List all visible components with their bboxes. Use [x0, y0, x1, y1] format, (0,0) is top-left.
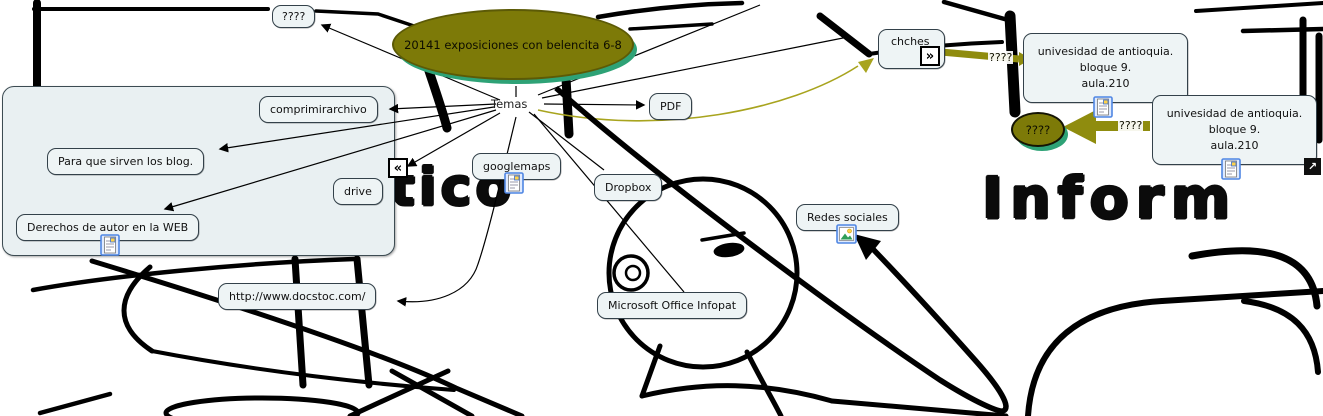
- node-universidad-2[interactable]: univesidad de antioquia. bloque 9. aula.…: [1152, 95, 1317, 165]
- link-temas-pdf: [544, 104, 644, 105]
- link-temas-derechos: [165, 110, 496, 209]
- link-label-chches-univ1[interactable]: ????: [988, 51, 1013, 64]
- document-resource-icon[interactable]: [1221, 158, 1241, 180]
- link-temas-infopath: [534, 114, 684, 292]
- document-resource-icon[interactable]: [100, 234, 120, 256]
- document-resource-icon[interactable]: [1093, 96, 1113, 118]
- unknown-ellipse[interactable]: ????: [1011, 112, 1065, 147]
- node-unknown-top[interactable]: ????: [272, 5, 315, 28]
- node-drive[interactable]: drive: [333, 178, 383, 205]
- node-para-que-sirven-blogs[interactable]: Para que sirven los blog.: [47, 148, 204, 175]
- document-resource-icon[interactable]: [504, 172, 524, 194]
- node-docstoc-url[interactable]: http://www.docstoc.com/: [218, 283, 376, 310]
- link-label-univ2-ellipse[interactable]: ????: [1118, 119, 1143, 132]
- collapse-left-icon[interactable]: «: [388, 158, 408, 178]
- main-topic-ellipse[interactable]: 20141 exposiciones con belencita 6-8: [392, 9, 634, 80]
- concept-map: tico Inform: [0, 0, 1323, 416]
- external-link-icon[interactable]: ↗: [1304, 158, 1321, 175]
- linking-phrase-temas[interactable]: Temas: [491, 97, 527, 111]
- link-temas-docstoc: [398, 117, 516, 302]
- link-chches-univ1: [941, 52, 1031, 66]
- node-pdf[interactable]: PDF: [649, 93, 692, 120]
- node-universidad-1[interactable]: univesidad de antioquia. bloque 9. aula.…: [1023, 33, 1188, 103]
- link-temas-comprimir: [390, 104, 496, 109]
- image-resource-icon[interactable]: [836, 224, 857, 244]
- node-comprimirarchivo[interactable]: comprimirarchivo: [259, 96, 378, 123]
- main-topic-label: 20141 exposiciones con belencita 6-8: [404, 38, 622, 52]
- node-dropbox[interactable]: Dropbox: [594, 174, 662, 201]
- unknown-ellipse-label: ????: [1026, 123, 1050, 137]
- node-microsoft-office-infopat[interactable]: Microsoft Office Infopat: [597, 292, 747, 319]
- link-temas-redes-thick: [556, 88, 1006, 411]
- expand-right-icon[interactable]: »: [920, 46, 940, 66]
